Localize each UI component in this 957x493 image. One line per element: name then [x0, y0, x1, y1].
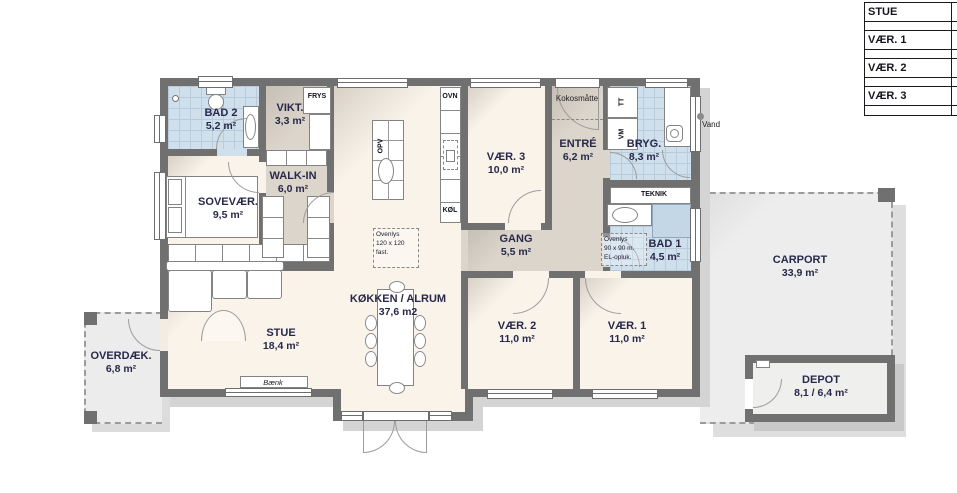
window-vaer1-bottom — [592, 389, 658, 399]
window-bad1-right — [690, 208, 701, 262]
cooktop-inner — [446, 150, 455, 162]
room-area: 8,1 / 6,4 m² — [794, 387, 848, 399]
bench-label: Bænk — [263, 378, 283, 387]
room-name: ENTRÉ — [559, 138, 596, 151]
room-name: BRYG. — [627, 138, 661, 151]
room-area: 4,5 m² — [648, 251, 681, 263]
sofa-cushion — [212, 270, 247, 299]
floor-kitchen-bump — [341, 389, 465, 412]
window-bump-right — [429, 411, 452, 421]
note-line: fast. — [376, 249, 416, 258]
overdaek-post-bottom — [84, 411, 97, 424]
sofa-chaise — [168, 270, 212, 312]
bed-headboard-line — [185, 177, 186, 237]
bryg-entre-door-opening — [603, 150, 610, 178]
dining-chair — [365, 333, 377, 349]
window-bump-left — [341, 411, 363, 421]
legend-label: STUE — [868, 6, 897, 18]
window-vaer3-top — [470, 78, 541, 88]
french-door-arc-right — [395, 421, 427, 453]
entry-door-opening — [555, 78, 600, 88]
legend-row: VÆR. 3 — [865, 87, 957, 106]
walkin-wardrobe-left — [262, 196, 284, 258]
legend-label: VÆR. 2 — [868, 62, 907, 74]
teknik-label: TEKNIK — [641, 191, 667, 198]
koel-label: KØL — [443, 207, 458, 214]
shower-drain-bad2 — [172, 95, 179, 102]
room-area: 8,3 m² — [627, 151, 661, 163]
floor-gang — [468, 230, 603, 271]
vaer2-door-opening — [513, 271, 549, 278]
room-label-vikt: VIKT. 3,3 m² — [275, 102, 305, 127]
dining-chair — [414, 351, 426, 367]
vaer3-door-opening — [505, 223, 541, 230]
room-label-vaer2: VÆR. 2 11,0 m² — [498, 320, 537, 345]
bad1-skylight-note: Ovenlys 90 x 90 m. EL-opluk. — [601, 233, 647, 266]
legend-row: VÆR. 1 — [865, 31, 957, 50]
note-line: EL-opluk. — [604, 254, 644, 263]
room-area: 3,3 m² — [275, 115, 305, 127]
dining-chair — [389, 382, 405, 394]
window-sovevaer-left — [154, 172, 166, 240]
room-name: OVERDÆK. — [90, 350, 151, 363]
island-sink — [378, 158, 394, 184]
room-name: BAD 2 — [204, 107, 237, 120]
bad2-door-opening — [217, 149, 247, 156]
room-name: STUE — [263, 327, 299, 340]
room-area: 5,5 m² — [500, 246, 533, 258]
note-line: Ovenlys — [376, 231, 416, 240]
entry-mat-line — [552, 119, 603, 120]
room-label-entre: ENTRÉ 6,2 m² — [559, 138, 596, 163]
room-area: 9,5 m² — [198, 209, 258, 221]
kitchen-skylight-note: Ovenlys 120 x 120 fast. — [373, 228, 419, 268]
stue-overdaek-door-opening — [160, 319, 168, 351]
water-connection-dot — [697, 113, 704, 120]
window-stue-bottom — [225, 388, 312, 397]
room-legend-table: STUE VÆR. 1 VÆR. 2 VÆR. 3 — [864, 2, 957, 116]
opv-label: OPV — [378, 139, 385, 154]
room-label-vaer3: VÆR. 3 10,0 m² — [487, 151, 526, 176]
room-area: 10,0 m² — [487, 164, 526, 176]
floor-gang-kitchen-opening — [461, 230, 468, 271]
note-line: 90 x 90 m. — [604, 245, 644, 254]
room-label-bryg: BRYG. 8,3 m² — [627, 138, 661, 163]
window-bad2-top — [198, 76, 233, 88]
room-name: VIKT. — [275, 102, 305, 115]
room-name: VÆR. 1 — [608, 320, 647, 333]
room-name: BAD 1 — [648, 238, 681, 251]
room-label-walkin: WALK-IN 6,0 m² — [269, 170, 316, 195]
water-label: Vand — [702, 120, 720, 129]
room-name: CARPORT — [773, 254, 827, 267]
dining-chair — [389, 281, 405, 293]
dining-chair — [365, 351, 377, 367]
room-name: KØKKEN / ALRUM — [350, 293, 446, 306]
shower-bad1 — [652, 204, 691, 238]
room-name: DEPOT — [794, 374, 848, 387]
walkin-top-cabinet — [266, 150, 327, 166]
room-label-depot: DEPOT 8,1 / 6,4 m² — [794, 374, 848, 399]
room-name: GANG — [500, 233, 533, 246]
room-label-gang: GANG 5,5 m² — [500, 233, 533, 258]
room-area: 6,2 m² — [559, 151, 596, 163]
legend-row — [865, 22, 957, 31]
depot-window-box — [756, 360, 770, 368]
legend-row: STUE — [865, 3, 957, 22]
frys-cabinet — [303, 87, 331, 114]
bryg-sink-drain — [670, 129, 679, 138]
room-label-vaer1: VÆR. 1 11,0 m² — [608, 320, 647, 345]
room-name: VÆR. 3 — [487, 151, 526, 164]
door-bryg-right — [690, 96, 701, 152]
legend-label: VÆR. 3 — [868, 90, 907, 102]
entry-mat-label: Kokosmåtte — [556, 94, 598, 103]
overdaek-post-top — [84, 312, 97, 325]
french-door-arc-left — [363, 421, 395, 453]
vaer1-door-opening — [585, 271, 621, 278]
room-area: 33,9 m² — [773, 267, 827, 279]
room-label-bad2: BAD 2 5,2 m² — [204, 107, 237, 132]
legend-row: VÆR. 2 — [865, 59, 957, 78]
room-label-kokken: KØKKEN / ALRUM 37,6 m2 — [350, 293, 446, 318]
sofa-cushion — [247, 270, 282, 299]
room-area: 6,8 m² — [90, 363, 151, 375]
bed-pillow-1 — [168, 179, 182, 205]
french-door-opening — [363, 411, 429, 421]
floor-plan: Ovenlys 120 x 120 fast. Ovenlys 90 x 90 … — [0, 0, 957, 493]
legend-row — [865, 50, 957, 59]
tt-label: TT — [619, 98, 626, 107]
ovn-label: OVN — [442, 93, 457, 100]
room-area: 18,4 m² — [263, 340, 299, 352]
window-kitchen-top — [337, 78, 408, 88]
room-label-carport: CARPORT 33,9 m² — [773, 254, 827, 279]
room-label-bad1: BAD 1 4,5 m² — [648, 238, 681, 263]
note-line: Ovenlys — [604, 236, 644, 245]
room-name: WALK-IN — [269, 170, 316, 183]
note-line: 120 x 120 — [376, 240, 416, 249]
vm-label: VM — [619, 129, 626, 140]
dining-chair — [414, 333, 426, 349]
room-area: 6,0 m² — [269, 183, 316, 195]
legend-label: VÆR. 1 — [868, 34, 907, 46]
legend-row — [865, 106, 957, 115]
room-area: 37,6 m2 — [350, 306, 446, 318]
room-name: VÆR. 2 — [498, 320, 537, 333]
frys-label: FRYS — [308, 93, 326, 100]
legend-column-divider — [951, 2, 952, 116]
sink-bad1 — [612, 207, 638, 223]
sovevaer-door-opening — [259, 162, 266, 193]
legend-row — [865, 78, 957, 87]
window-bad2-left — [154, 115, 166, 143]
room-label-overdaek: OVERDÆK. 6,8 m² — [90, 350, 151, 375]
window-vaer2-bottom — [487, 389, 553, 399]
vikt-cabinet — [309, 114, 331, 150]
room-area: 5,2 m² — [204, 120, 237, 132]
wardrobe-row-sovevaer — [168, 244, 330, 262]
room-name: SOVEVÆR. — [198, 196, 258, 209]
window-bryg-top — [645, 78, 688, 88]
bed-pillow-2 — [168, 207, 182, 233]
room-area: 11,0 m² — [608, 333, 647, 345]
room-label-sovevaer: SOVEVÆR. 9,5 m² — [198, 196, 258, 221]
carport-post — [878, 188, 895, 202]
room-area: 11,0 m² — [498, 333, 537, 345]
room-label-stue: STUE 18,4 m² — [263, 327, 299, 352]
depot-door-opening — [745, 379, 753, 409]
